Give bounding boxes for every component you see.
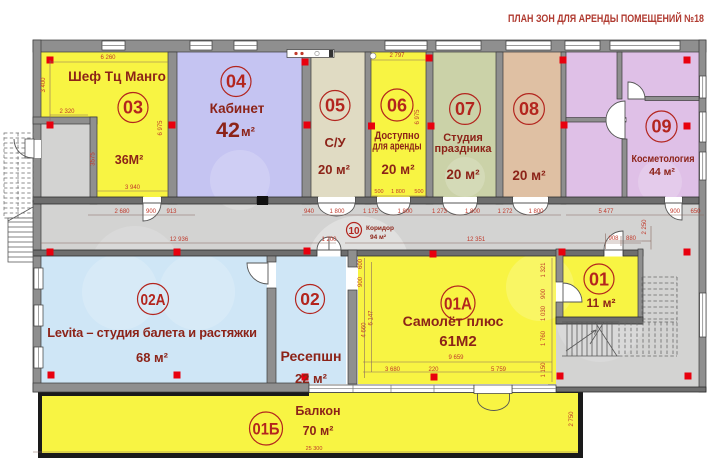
svg-text:1 800: 1 800 bbox=[397, 209, 413, 215]
svg-text:25 300: 25 300 bbox=[306, 446, 323, 452]
svg-text:1 800: 1 800 bbox=[329, 209, 345, 215]
svg-text:02А: 02А bbox=[141, 292, 166, 309]
svg-text:Ресепшн: Ресепшн bbox=[281, 349, 342, 364]
svg-text:праздника: праздника bbox=[434, 143, 492, 155]
svg-text:20 м²: 20 м² bbox=[381, 162, 415, 177]
svg-text:900: 900 bbox=[541, 288, 547, 299]
svg-text:01А: 01А bbox=[444, 294, 472, 314]
svg-text:04: 04 bbox=[226, 72, 246, 92]
svg-text:06: 06 bbox=[387, 96, 407, 116]
svg-text:05: 05 bbox=[325, 96, 345, 116]
svg-text:68 м²: 68 м² bbox=[136, 350, 169, 365]
svg-text:12 936: 12 936 bbox=[170, 237, 189, 243]
svg-text:2 797: 2 797 bbox=[389, 53, 405, 59]
svg-text:2 320: 2 320 bbox=[59, 109, 75, 115]
svg-text:913: 913 bbox=[166, 209, 177, 215]
svg-text:2 680: 2 680 bbox=[114, 209, 130, 215]
svg-text:03: 03 bbox=[123, 98, 143, 118]
svg-text:1 175: 1 175 bbox=[363, 209, 379, 215]
svg-text:для аренды: для аренды bbox=[373, 141, 422, 153]
svg-text:Шеф Тц Манго: Шеф Тц Манго bbox=[68, 69, 166, 84]
svg-text:08: 08 bbox=[519, 99, 539, 119]
svg-text:1 272: 1 272 bbox=[497, 209, 513, 215]
svg-text:01: 01 bbox=[589, 270, 609, 290]
svg-text:9 659: 9 659 bbox=[448, 355, 464, 361]
svg-text:940: 940 bbox=[304, 209, 315, 215]
svg-text:42: 42 bbox=[216, 118, 240, 142]
svg-text:Коридор: Коридор bbox=[366, 225, 394, 232]
svg-text:3 400: 3 400 bbox=[41, 77, 47, 93]
svg-text:м²: м² bbox=[241, 124, 256, 139]
svg-text:36М²: 36М² bbox=[115, 153, 143, 167]
svg-text:6 975: 6 975 bbox=[415, 109, 421, 125]
svg-text:Балкон: Балкон bbox=[295, 404, 340, 418]
svg-text:650: 650 bbox=[690, 209, 701, 215]
svg-text:1 273: 1 273 bbox=[432, 209, 448, 215]
svg-text:900: 900 bbox=[146, 209, 157, 215]
svg-text:2 750: 2 750 bbox=[569, 411, 575, 427]
svg-text:1 760: 1 760 bbox=[541, 330, 547, 346]
svg-text:900: 900 bbox=[670, 209, 681, 215]
svg-text:Самолёт плюс: Самолёт плюс bbox=[403, 313, 504, 329]
svg-text:20 м²: 20 м² bbox=[318, 162, 351, 177]
svg-text:Косметология: Косметология bbox=[632, 153, 695, 165]
svg-text:07: 07 bbox=[455, 99, 475, 119]
svg-text:1 800: 1 800 bbox=[528, 209, 544, 215]
svg-text:Levita – студия балета и растя: Levita – студия балета и растяжки bbox=[47, 325, 257, 340]
svg-text:20 м²: 20 м² bbox=[446, 167, 480, 182]
svg-text:1 800: 1 800 bbox=[391, 189, 405, 195]
svg-text:1 800: 1 800 bbox=[465, 209, 481, 215]
svg-text:2 250: 2 250 bbox=[642, 219, 648, 235]
svg-text:10: 10 bbox=[348, 226, 360, 237]
svg-text:70 м²: 70 м² bbox=[303, 424, 334, 438]
svg-text:6 975: 6 975 bbox=[158, 120, 164, 136]
svg-text:94 м²: 94 м² bbox=[370, 234, 387, 241]
svg-text:20 м²: 20 м² bbox=[512, 168, 546, 183]
svg-text:02: 02 bbox=[300, 289, 320, 309]
svg-text:3 940: 3 940 bbox=[125, 185, 141, 191]
svg-text:600: 600 bbox=[358, 258, 364, 269]
svg-text:01Б: 01Б bbox=[253, 421, 280, 439]
svg-text:5 477: 5 477 bbox=[598, 209, 614, 215]
svg-text:500: 500 bbox=[414, 189, 423, 195]
svg-text:1 150: 1 150 bbox=[541, 362, 547, 378]
svg-text:3575: 3575 bbox=[91, 152, 97, 166]
svg-text:12 351: 12 351 bbox=[467, 237, 486, 243]
svg-text:44 м²: 44 м² bbox=[649, 166, 675, 178]
svg-text:ПЛАН ЗОН ДЛЯ АРЕНДЫ ПОМЕЩЕНИЙ: ПЛАН ЗОН ДЛЯ АРЕНДЫ ПОМЕЩЕНИЙ №18 bbox=[508, 12, 704, 25]
svg-text:61М2: 61М2 bbox=[439, 333, 477, 350]
svg-text:Кабинет: Кабинет bbox=[210, 101, 265, 116]
svg-text:1 030: 1 030 bbox=[541, 305, 547, 321]
svg-text:1 321: 1 321 bbox=[541, 262, 547, 278]
svg-text:С/У: С/У bbox=[324, 135, 346, 150]
svg-text:1 200: 1 200 bbox=[321, 237, 337, 243]
svg-text:22 м²: 22 м² bbox=[295, 371, 328, 386]
svg-text:09: 09 bbox=[651, 117, 671, 137]
svg-text:900: 900 bbox=[358, 276, 364, 287]
svg-text:6 260: 6 260 bbox=[100, 55, 116, 61]
svg-text:500: 500 bbox=[374, 189, 383, 195]
svg-text:11 м²: 11 м² bbox=[587, 296, 616, 310]
